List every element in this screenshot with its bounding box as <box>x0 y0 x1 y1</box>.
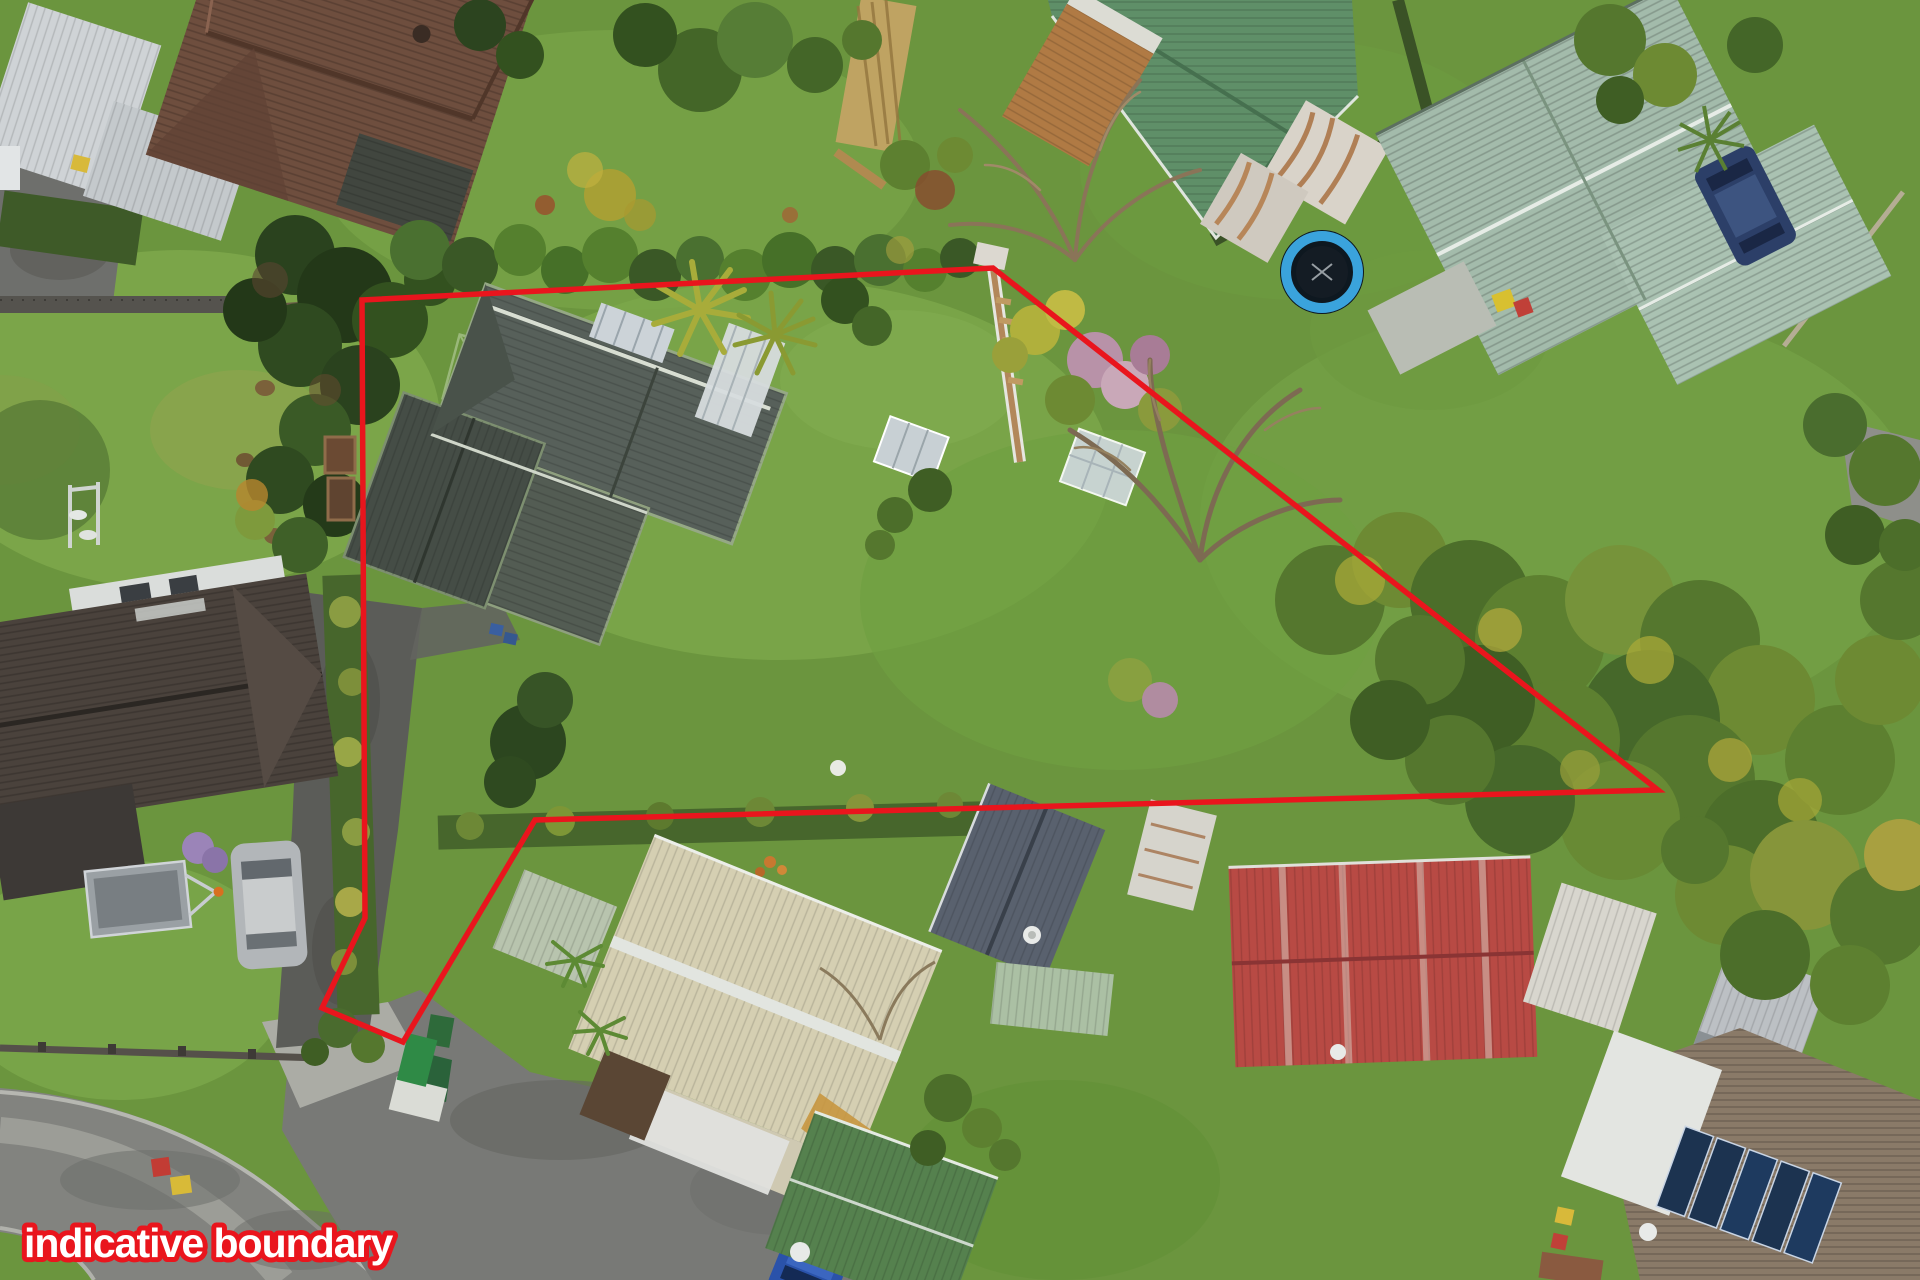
boundary-label: indicative boundary <box>24 1220 393 1266</box>
pale-green-outbuilding <box>990 962 1114 1036</box>
aerial-photo-canvas: indicative boundary <box>0 0 1920 1280</box>
trampoline <box>1280 230 1364 314</box>
aerial-photo: indicative boundary <box>0 0 1920 1280</box>
satellite-dish-red-house <box>1330 1044 1346 1060</box>
satellite-dish-se-house <box>1639 1223 1657 1241</box>
silver-car <box>230 840 309 971</box>
paling-fence <box>0 296 248 313</box>
white-car <box>0 146 20 190</box>
south-east-house <box>1228 857 1537 1067</box>
satellite-dish <box>790 1242 810 1262</box>
satellite-dish-pole <box>830 760 846 776</box>
garden-beds <box>325 437 355 520</box>
